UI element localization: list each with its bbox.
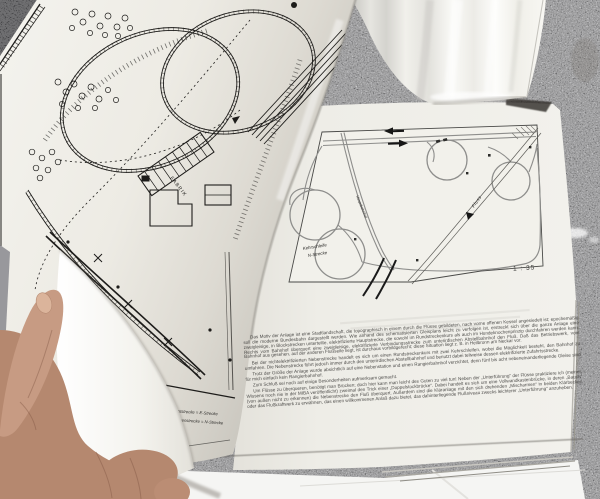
diagram-scale-label: 1 : 35	[513, 264, 536, 272]
diagram-border	[289, 125, 543, 282]
granite-reflection	[589, 237, 599, 243]
photo-of-magazine: Kehrschleife N-Strecke Fluss Hauptbahnho…	[0, 0, 600, 499]
granite-patch	[571, 38, 599, 82]
page-number: 55	[538, 105, 546, 112]
photo-artwork: Kehrschleife N-Strecke Fluss Hauptbahnho…	[0, 0, 600, 499]
small-building	[142, 176, 149, 181]
